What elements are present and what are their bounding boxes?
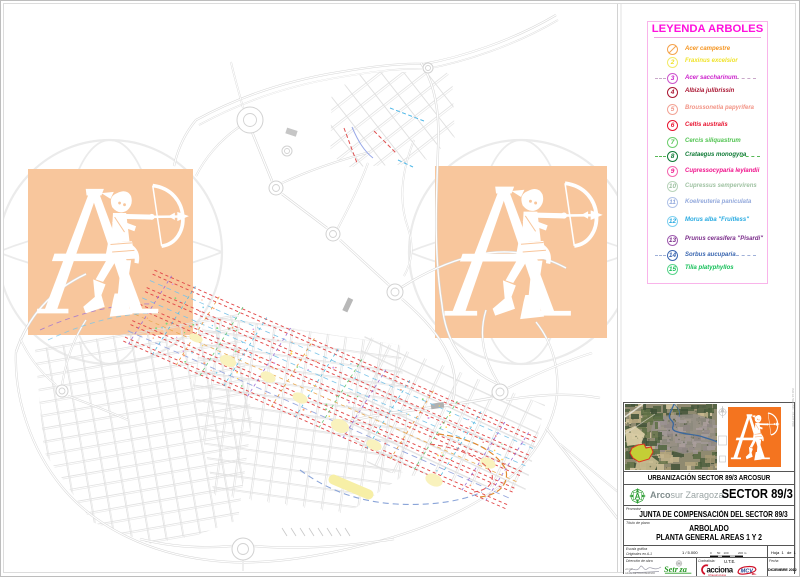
svg-text:100: 100 [724,551,729,555]
svg-text:50: 50 [717,551,721,555]
svg-text:Infraestructuras: Infraestructuras [708,573,727,577]
svg-text:MCV: MCV [741,569,755,575]
svg-text:0: 0 [710,551,712,555]
svg-text:A: A [635,491,641,500]
svg-text:Setr za: Setr za [664,564,687,573]
svg-text:200 m: 200 m [738,551,747,555]
